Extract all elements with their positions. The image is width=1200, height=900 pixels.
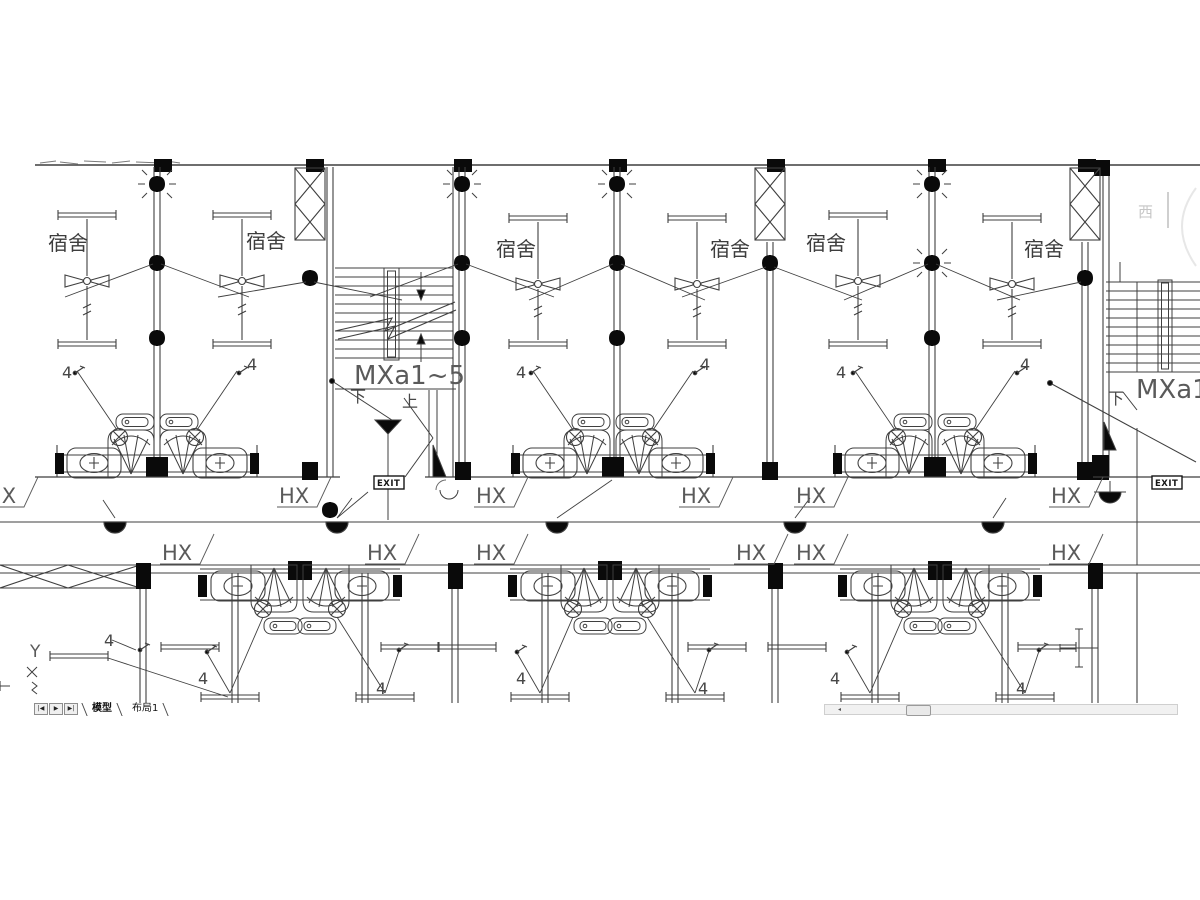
drawing-text-labels: 宿舍宿舍宿舍宿舍宿舍宿舍HXHXHXHXHXHXHXHXHXHXHXHXMXa1… — [0, 203, 1200, 698]
label-room: 宿舍 — [496, 237, 536, 261]
tab-slant-right — [163, 703, 169, 716]
label-hx: HX — [367, 541, 397, 565]
label-hx: HX — [796, 541, 826, 565]
tab-nav-first-button[interactable]: |◀ — [34, 703, 48, 715]
tab-nav-next-button[interactable]: ▶ — [49, 703, 63, 715]
layout-tabs: 模型 布局1 — [82, 703, 168, 716]
washroom-clusters-top — [55, 366, 1037, 478]
washroom-unit — [511, 366, 715, 478]
scroll-left-arrow-icon[interactable]: ◂ — [834, 706, 845, 713]
tab-layout1[interactable]: 布局1 — [122, 703, 168, 715]
room-unit — [668, 213, 726, 349]
label-hx: HX — [476, 484, 506, 508]
label-hx: HX — [736, 541, 766, 565]
label-west: 西 — [1138, 203, 1153, 221]
label-room: 宿舍 — [806, 231, 846, 255]
tab-model[interactable]: 模型 — [82, 703, 122, 715]
label-hx: HX — [1051, 541, 1081, 565]
label-hx: HX — [162, 541, 192, 565]
tab-slant-left — [81, 703, 87, 716]
label-four: 4 — [1020, 355, 1030, 374]
label-hx: HX — [1051, 484, 1081, 508]
label-four: 4 — [700, 355, 710, 374]
label-four: 4 — [516, 669, 526, 688]
label-four: 4 — [516, 363, 526, 382]
room-unit — [983, 213, 1041, 349]
label-room: 宿舍 — [710, 237, 750, 261]
drawing-canvas[interactable]: 宿舍宿舍宿舍宿舍宿舍宿舍HXHXHXHXHXHXHXHXHXHXHXHXMXa1… — [0, 0, 1200, 703]
label-four: 4 — [104, 631, 114, 650]
label-hx: HX — [476, 541, 506, 565]
label-four: 4 — [376, 679, 386, 698]
label-mx: MXa1~5 — [354, 361, 465, 391]
label-four: 4 — [198, 669, 208, 688]
label-hx: HX — [0, 484, 16, 508]
corridor — [0, 462, 1200, 533]
label-hx: HX — [796, 484, 826, 508]
label-four: 4 — [1016, 679, 1026, 698]
label-ud: 上 — [402, 392, 418, 411]
label-ud: 下 — [350, 387, 366, 406]
label-four: 4 — [247, 355, 257, 374]
tab-model-label: 模型 — [92, 703, 112, 714]
label-y: Y — [29, 642, 41, 662]
label-four: 4 — [62, 363, 72, 382]
scrollbar-thumb[interactable] — [906, 705, 931, 716]
label-four: 4 — [830, 669, 840, 688]
tab-layout1-label: 布局1 — [132, 703, 158, 714]
label-room: 宿舍 — [246, 229, 286, 253]
washroom-clusters-bottom — [161, 561, 1076, 703]
horizontal-scrollbar[interactable]: ◂ — [824, 704, 1178, 715]
exit-sign-label: EXIT — [377, 479, 400, 489]
label-hx: HX — [279, 484, 309, 508]
layout-tab-bar: |◀ ▶ ▶| 模型 布局1 ◂ — [0, 703, 1200, 717]
application-window: 宿舍宿舍宿舍宿舍宿舍宿舍HXHXHXHXHXHXHXHXHXHXHXHXMXa1… — [0, 0, 1200, 900]
label-ud: 下 — [1108, 389, 1124, 408]
washroom-unit — [508, 561, 724, 703]
washroom-unit — [55, 366, 259, 478]
label-room: 宿舍 — [48, 231, 88, 255]
room-unit — [509, 213, 567, 349]
exit-sign-label: EXIT — [1155, 479, 1178, 489]
tab-nav-last-button[interactable]: ▶| — [64, 703, 78, 715]
label-mx: MXa1~5 — [1136, 375, 1200, 405]
tab-nav-buttons: |◀ ▶ ▶| — [34, 703, 78, 715]
room-fixtures — [58, 210, 1041, 349]
label-four: 4 — [836, 363, 846, 382]
label-four: 4 — [698, 679, 708, 698]
label-hx: HX — [681, 484, 711, 508]
label-room: 宿舍 — [1024, 237, 1064, 261]
